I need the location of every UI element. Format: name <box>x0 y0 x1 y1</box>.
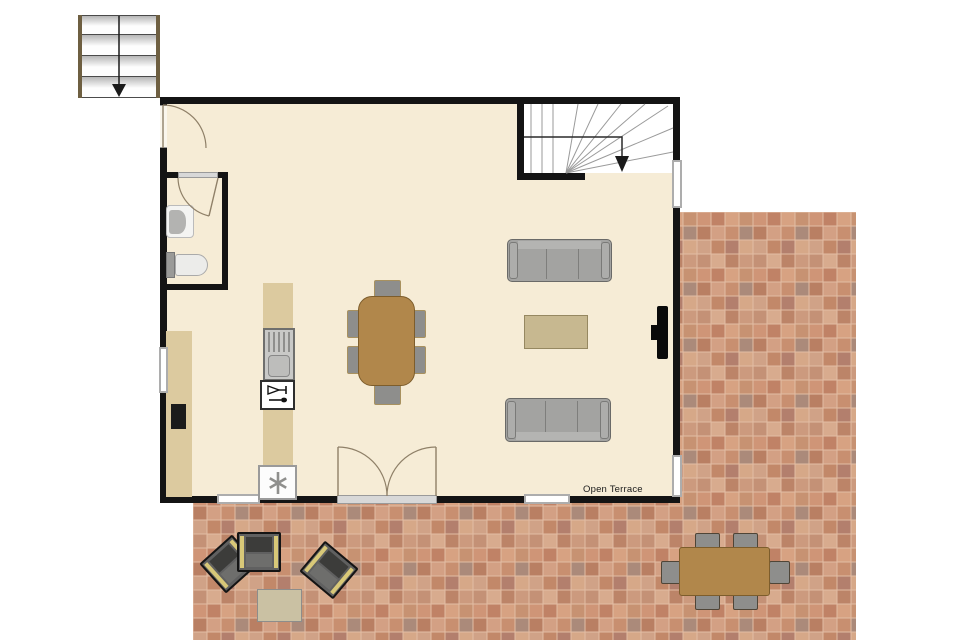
utensil-glyph <box>265 384 291 406</box>
lounge-armrest <box>274 536 278 568</box>
side-table <box>257 589 302 622</box>
sink-with-drainer-icon <box>263 328 295 381</box>
outdoor-dining-table <box>679 547 770 596</box>
sofa-cushion-divider <box>545 401 546 432</box>
sofa-back <box>518 241 601 249</box>
sofa-back <box>516 432 600 440</box>
exterior-staircase <box>78 15 160 98</box>
sofa <box>505 398 611 442</box>
sofa-arm <box>601 242 610 279</box>
stair-tread <box>82 77 156 98</box>
washbasin-icon <box>166 205 194 238</box>
coffee-table <box>524 315 588 349</box>
wall-tv-icon <box>657 306 668 359</box>
tv-mount <box>651 325 658 340</box>
asterisk-glyph <box>265 470 291 496</box>
bathroom-wall-bottom <box>160 284 228 290</box>
sink-basin <box>268 355 290 377</box>
bathroom-wall-top-left <box>160 172 178 178</box>
toilet-icon <box>175 254 208 276</box>
lounge-chair <box>237 532 281 572</box>
sofa <box>507 239 612 282</box>
window <box>524 494 570 504</box>
sofa-cushion-divider <box>577 401 578 432</box>
lounge-seat-cushion <box>246 554 272 567</box>
stair-enclosure-wall-bottom <box>517 173 585 180</box>
lounge-armrest <box>240 536 244 568</box>
dining-table <box>358 296 415 386</box>
outdoor-chair <box>769 561 790 584</box>
terrace-door-sill <box>337 495 437 504</box>
sofa-arm <box>600 401 609 439</box>
open-terrace-label: Open Terrace <box>583 484 643 495</box>
built-in-appliance-icon <box>171 404 186 429</box>
wall-right <box>673 97 680 503</box>
drainer-grooves <box>268 332 290 352</box>
stair-rail-right <box>156 15 160 98</box>
entrance-door-opening <box>160 105 167 148</box>
window <box>217 494 260 504</box>
window <box>672 455 682 497</box>
window <box>672 160 682 208</box>
wall-top <box>160 97 680 104</box>
interior-staircase <box>524 104 673 173</box>
stair-enclosure-wall-left <box>517 97 524 180</box>
window <box>159 347 168 393</box>
sofa-cushion-divider <box>578 249 579 279</box>
bathroom-wall-right <box>222 172 228 290</box>
stair-tread <box>82 56 156 77</box>
sofa-arm <box>507 401 516 439</box>
lounge-back-cushion <box>246 537 272 552</box>
asterisk-cooktop-icon <box>258 465 297 500</box>
kitchen-utensil-icon <box>260 380 295 410</box>
stair-tread <box>82 35 156 56</box>
sofa-arm <box>509 242 518 279</box>
stair-tread <box>82 15 156 35</box>
washbasin-bowl <box>169 210 186 234</box>
sofa-cushion-divider <box>546 249 547 279</box>
floor-plan: Open Terrace <box>0 0 960 640</box>
toilet-tank <box>166 252 175 278</box>
dining-chair <box>374 383 401 405</box>
bathroom-door-sill <box>178 172 218 178</box>
